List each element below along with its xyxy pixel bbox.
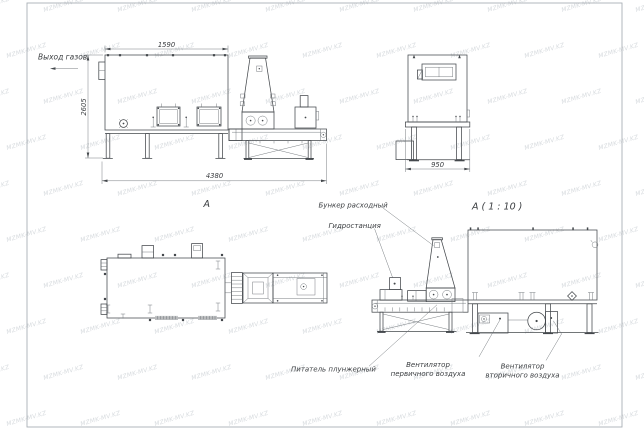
- watermark-text: MZMK-MV.KZ: [376, 226, 418, 244]
- watermark-text: MZMK-MV.KZ: [339, 272, 381, 290]
- watermark-text: MZMK-MV.KZ: [191, 180, 233, 198]
- secondary-housing-front: [295, 96, 319, 128]
- watermark-text: MZMK-MV.KZ: [0, 272, 11, 290]
- watermark-text: MZMK-MV.KZ: [0, 364, 11, 382]
- watermark-text: MZMK-MV.KZ: [265, 180, 307, 198]
- anchor-bolts: [151, 117, 189, 128]
- watermark-text: MZMK-MV.KZ: [598, 410, 640, 428]
- watermark-text: MZMK-MV.KZ: [487, 272, 529, 290]
- drawing-sheet: MZMK-MV.KZMZMK-MV.KZMZMK-MV.KZMZMK-MV.KZ…: [0, 0, 644, 430]
- plan-flange-strip: [231, 273, 242, 304]
- secondary-fan-label-line1: Вентилятор: [501, 362, 545, 370]
- watermark-text: MZMK-MV.KZ: [117, 272, 159, 290]
- watermark-text: MZMK-MV.KZ: [43, 272, 85, 290]
- furnace-panel-left: [157, 104, 180, 127]
- view-arrow-label: А: [203, 199, 211, 210]
- primary-fan-label-line1: Вентилятор: [406, 361, 450, 369]
- watermark-text: MZMK-MV.KZ: [191, 0, 233, 14]
- primary-air-fan: [478, 313, 508, 333]
- detail-view-label: А ( 1 : 10 ): [471, 201, 522, 212]
- watermark-text: MZMK-MV.KZ: [450, 134, 492, 152]
- watermark-text: MZMK-MV.KZ: [561, 88, 603, 106]
- watermark-text: MZMK-MV.KZ: [117, 88, 159, 106]
- watermark-text: MZMK-MV.KZ: [487, 88, 529, 106]
- watermark-text: MZMK-MV.KZ: [80, 410, 122, 428]
- plunger-feeder-side: [372, 296, 468, 313]
- watermark-text: MZMK-MV.KZ: [635, 180, 644, 198]
- hopper-fan-housing-front: [242, 112, 274, 129]
- watermark-text: MZMK-MV.KZ: [376, 318, 418, 336]
- watermark-text: MZMK-MV.KZ: [561, 0, 603, 14]
- hydraulic-station-label: Гидростанция: [329, 222, 381, 230]
- watermark-text: MZMK-MV.KZ: [228, 226, 270, 244]
- leader-plunger-feeder: [369, 305, 437, 366]
- hydraulic-station: [380, 278, 402, 301]
- watermark-text: MZMK-MV.KZ: [43, 364, 85, 382]
- furnace-body-end: [408, 55, 467, 122]
- watermark-text: MZMK-MV.KZ: [117, 364, 159, 382]
- watermark-text: MZMK-MV.KZ: [524, 410, 566, 428]
- watermark-text: MZMK-MV.KZ: [376, 410, 418, 428]
- watermark-text: MZMK-MV.KZ: [0, 88, 11, 106]
- watermark-text: MZMK-MV.KZ: [413, 0, 455, 14]
- gas-outlet-stub: [99, 62, 105, 80]
- watermark-text: MZMK-MV.KZ: [598, 134, 640, 152]
- watermark-text: MZMK-MV.KZ: [80, 134, 122, 152]
- gas-outlet-label: Выход газов: [38, 53, 87, 62]
- watermark-text: MZMK-MV.KZ: [561, 180, 603, 198]
- watermark-text: MZMK-MV.KZ: [561, 364, 603, 382]
- watermark-text: MZMK-MV.KZ: [43, 0, 85, 14]
- hopper-side: [408, 238, 455, 302]
- gas-flow-arrow-icon: [50, 67, 78, 70]
- plan-left-flanges: [101, 260, 107, 315]
- primary-fan-label-line2: первичного воздуха: [391, 370, 466, 378]
- watermark-text: MZMK-MV.KZ: [154, 410, 196, 428]
- watermark-text: MZMK-MV.KZ: [191, 364, 233, 382]
- watermark-text: MZMK-MV.KZ: [487, 180, 529, 198]
- watermark-text: MZMK-MV.KZ: [154, 134, 196, 152]
- dimension-front-height-value: 2605: [80, 98, 88, 115]
- watermark-text: MZMK-MV.KZ: [302, 42, 344, 60]
- watermark-text: MZMK-MV.KZ: [191, 272, 233, 290]
- watermark-text: MZMK-MV.KZ: [450, 42, 492, 60]
- watermark-text: MZMK-MV.KZ: [413, 180, 455, 198]
- watermark-text: MZMK-MV.KZ: [524, 42, 566, 60]
- watermark-text: MZMK-MV.KZ: [524, 134, 566, 152]
- watermark-text: MZMK-MV.KZ: [487, 0, 529, 14]
- watermark-text: MZMK-MV.KZ: [376, 42, 418, 60]
- watermark-text: MZMK-MV.KZ: [0, 180, 11, 198]
- dimension-front-width-value: 1590: [158, 41, 175, 49]
- feed-hopper-label: Бункер расходный: [319, 202, 389, 210]
- watermark-text: MZMK-MV.KZ: [154, 226, 196, 244]
- watermark-text: MZMK-MV.KZ: [302, 410, 344, 428]
- watermark-text: MZMK-MV.KZ: [635, 272, 644, 290]
- watermark-text: MZMK-MV.KZ: [635, 0, 644, 14]
- furnace-body: [105, 55, 228, 130]
- watermark-text: MZMK-MV.KZ: [598, 226, 640, 244]
- dimension-end-width-value: 950: [431, 161, 444, 169]
- watermark-text: MZMK-MV.KZ: [154, 318, 196, 336]
- watermark-text: MZMK-MV.KZ: [413, 272, 455, 290]
- plunger-feeder-label: Питатель плунжерный: [291, 366, 376, 374]
- end-hatch: [417, 64, 456, 80]
- pipe-flange: [119, 119, 128, 128]
- watermark-text: MZMK-MV.KZ: [598, 42, 640, 60]
- watermark-text: MZMK-MV.KZ: [339, 88, 381, 106]
- watermark-text: MZMK-MV.KZ: [80, 226, 122, 244]
- sight-port-diamond: [568, 292, 577, 301]
- watermark-text: MZMK-MV.KZ: [117, 180, 159, 198]
- watermark-text: MZMK-MV.KZ: [191, 88, 233, 106]
- watermark-text: MZMK-MV.KZ: [228, 410, 270, 428]
- watermark-text: MZMK-MV.KZ: [117, 0, 159, 14]
- watermark-text: MZMK-MV.KZ: [228, 318, 270, 336]
- watermark-text: MZMK-MV.KZ: [302, 318, 344, 336]
- watermark-text: MZMK-MV.KZ: [339, 180, 381, 198]
- watermark-text: MZMK-MV.KZ: [635, 364, 644, 382]
- watermark-text: MZMK-MV.KZ: [43, 180, 85, 198]
- watermark-text: MZMK-MV.KZ: [635, 88, 644, 106]
- watermark-text: MZMK-MV.KZ: [0, 0, 11, 14]
- watermark-text: MZMK-MV.KZ: [413, 88, 455, 106]
- watermark-layer: MZMK-MV.KZMZMK-MV.KZMZMK-MV.KZMZMK-MV.KZ…: [0, 0, 644, 428]
- conveyor-plan: [273, 273, 327, 303]
- watermark-text: MZMK-MV.KZ: [524, 226, 566, 244]
- watermark-text: MZMK-MV.KZ: [43, 88, 85, 106]
- dimension-overall-length-value: 4380: [206, 172, 223, 180]
- furnace-panel-right: [197, 104, 221, 127]
- dimension-overall-length: 4380: [102, 144, 327, 185]
- secondary-fan-label-line2: вторичного воздуха: [485, 372, 559, 380]
- watermark-text: MZMK-MV.KZ: [598, 318, 640, 336]
- watermark-text: MZMK-MV.KZ: [80, 318, 122, 336]
- watermark-text: MZMK-MV.KZ: [339, 0, 381, 14]
- watermark-text: MZMK-MV.KZ: [450, 410, 492, 428]
- watermark-text: MZMK-MV.KZ: [265, 0, 307, 14]
